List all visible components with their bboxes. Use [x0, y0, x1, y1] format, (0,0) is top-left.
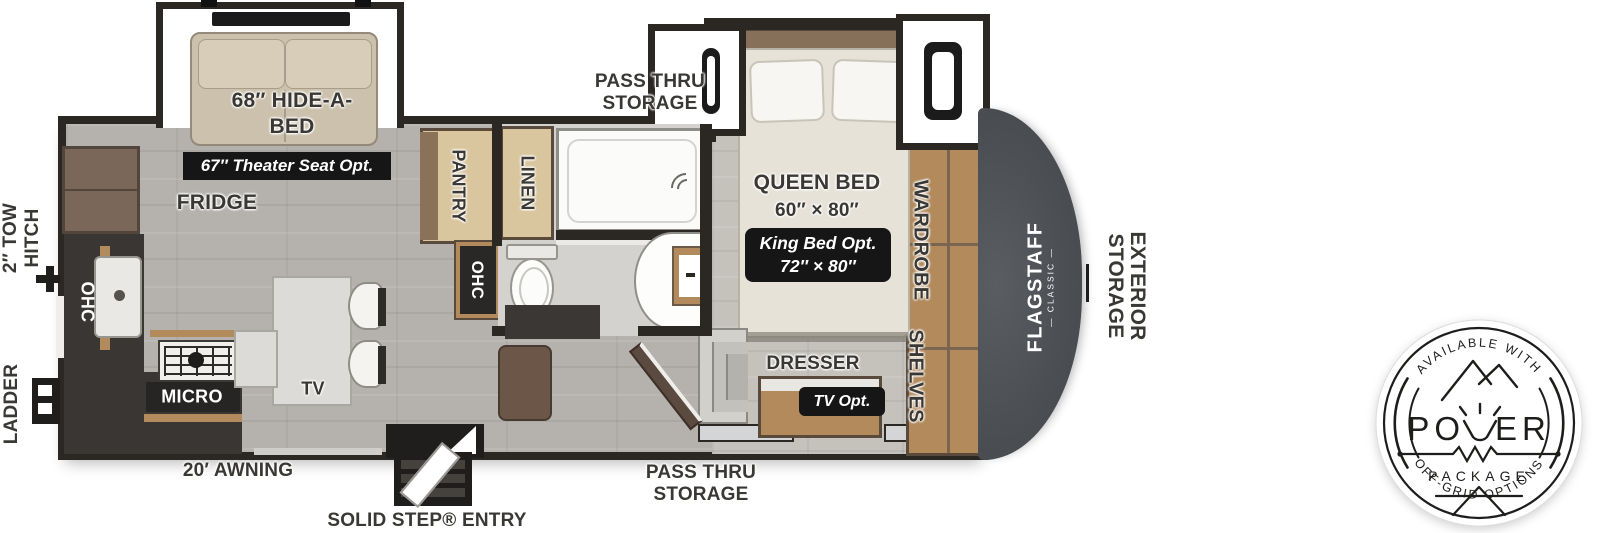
pass-thru-bottom-label: PASS THRU STORAGE — [646, 462, 756, 506]
slide-flange — [355, 0, 371, 7]
tv-label: TV — [301, 379, 324, 400]
floorplan-canvas: 67″ Theater Seat Opt. King Bed Opt. 72″ … — [0, 0, 1600, 533]
bedroom-steps — [698, 328, 748, 424]
sofa-back-cushion — [198, 39, 285, 89]
dresser-label: DRESSER — [766, 353, 859, 375]
ladder-rung — [38, 385, 52, 396]
bedroom-slideout — [896, 14, 990, 150]
solid-step-stairs — [394, 452, 472, 506]
slide-flange — [201, 0, 217, 7]
bath-wall-left — [492, 124, 502, 246]
power-package-badge: AVAILABLE WITH OFF-GRID OPTIONS PO ER PA… — [1374, 318, 1584, 528]
chair-base — [378, 346, 386, 384]
compartment-handle-inner — [707, 56, 715, 106]
pass-thru-top-line2: STORAGE — [595, 93, 705, 115]
brand-name: FLAGSTAFF — [1026, 222, 1046, 353]
cap-storage-seam — [1086, 264, 1089, 302]
rear-cabinet — [62, 146, 140, 234]
bath-wall-bottom-right — [638, 326, 708, 336]
pass-thru-top-label: PASS THRU STORAGE — [595, 71, 705, 115]
queen-bed-label: QUEEN BED — [754, 171, 881, 195]
micro-label: MICRO — [161, 387, 223, 408]
bath-wall-right — [700, 124, 712, 336]
wardrobe-label: WARDROBE — [909, 180, 932, 301]
exterior-storage-label: EXTERIOR STORAGE — [1104, 232, 1148, 341]
brand-series: — CLASSIC — — [1046, 222, 1057, 353]
pillow — [749, 59, 825, 124]
step — [726, 354, 748, 400]
brand-logo: FLAGSTAFF — CLASSIC — — [1026, 222, 1057, 353]
badge-package-text: PACKAGE — [1428, 468, 1530, 484]
door-side-window — [254, 448, 382, 455]
counter-wood-strip — [144, 414, 242, 422]
kitchen-ohc-label: OHC — [77, 282, 98, 323]
kitchen-sink — [94, 256, 142, 338]
theater-seat-option-banner: 67″ Theater Seat Opt. — [183, 152, 391, 180]
awning-label: 20′ AWNING — [183, 460, 293, 482]
exterior-storage-line1: EXTERIOR — [1126, 232, 1148, 341]
desk-chair — [498, 345, 552, 421]
pass-thru-top-line1: PASS THRU — [595, 71, 705, 93]
ladder-icon — [32, 378, 60, 424]
pantry-label: PANTRY — [448, 149, 469, 222]
shelves-label: SHELVES — [904, 329, 927, 422]
cabinet-line — [65, 189, 137, 191]
tv-cabinet-ext — [234, 330, 278, 388]
king-bed-size-label: 72″ × 80″ — [780, 255, 856, 278]
wardrobe-divider-line — [947, 139, 950, 453]
badge-power-left: PO — [1407, 410, 1465, 447]
tv-option-banner: TV Opt. — [799, 387, 885, 416]
faucet-icon — [114, 290, 125, 301]
tow-hitch-line2: HITCH — [22, 203, 44, 273]
pass-thru-bottom-line1: PASS THRU — [646, 462, 756, 484]
bed-foot-shadow — [738, 332, 910, 342]
tow-hitch-icon — [36, 275, 60, 283]
tow-hitch-line1: 2″ TOW — [0, 203, 22, 273]
stove — [158, 340, 238, 382]
king-bed-option-label: King Bed Opt. — [760, 232, 877, 255]
entry-label: SOLID STEP® ENTRY — [327, 510, 526, 532]
ladder-rung — [38, 403, 52, 414]
hide-a-bed-label: 68″ HIDE-A- BED — [232, 88, 353, 140]
pass-thru-bottom-line2: STORAGE — [646, 484, 756, 506]
chair-base — [378, 288, 386, 326]
exterior-storage-line2: STORAGE — [1104, 232, 1126, 341]
fridge-label: FRIDGE — [177, 191, 258, 215]
hide-a-bed-line1: 68″ HIDE-A- — [232, 88, 353, 114]
burner-icon — [188, 352, 204, 368]
shower — [556, 128, 706, 232]
rear-wall-window — [56, 296, 64, 358]
sink-drain — [686, 273, 695, 277]
counter-wood-strip — [150, 330, 242, 337]
ladder-label: LADDER — [1, 364, 23, 444]
tv-option-label: TV Opt. — [814, 393, 871, 411]
slide-tv-bar — [212, 12, 350, 26]
desk — [505, 305, 600, 339]
slide-window-glass — [932, 52, 954, 110]
bath-ohc-label: OHC — [467, 261, 487, 300]
pantry-side — [420, 132, 438, 240]
king-bed-option-banner: King Bed Opt. 72″ × 80″ — [745, 228, 891, 282]
theater-seat-option-label: 67″ Theater Seat Opt. — [201, 156, 374, 176]
hide-a-bed-line2: BED — [232, 114, 353, 140]
linen-label: LINEN — [517, 156, 538, 211]
badge-power-right: ER — [1495, 410, 1551, 447]
sofa-back-cushion — [285, 39, 372, 89]
queen-bed-size-label: 60″ × 80″ — [775, 200, 859, 222]
tow-hitch-label: 2″ TOW HITCH — [0, 203, 44, 273]
